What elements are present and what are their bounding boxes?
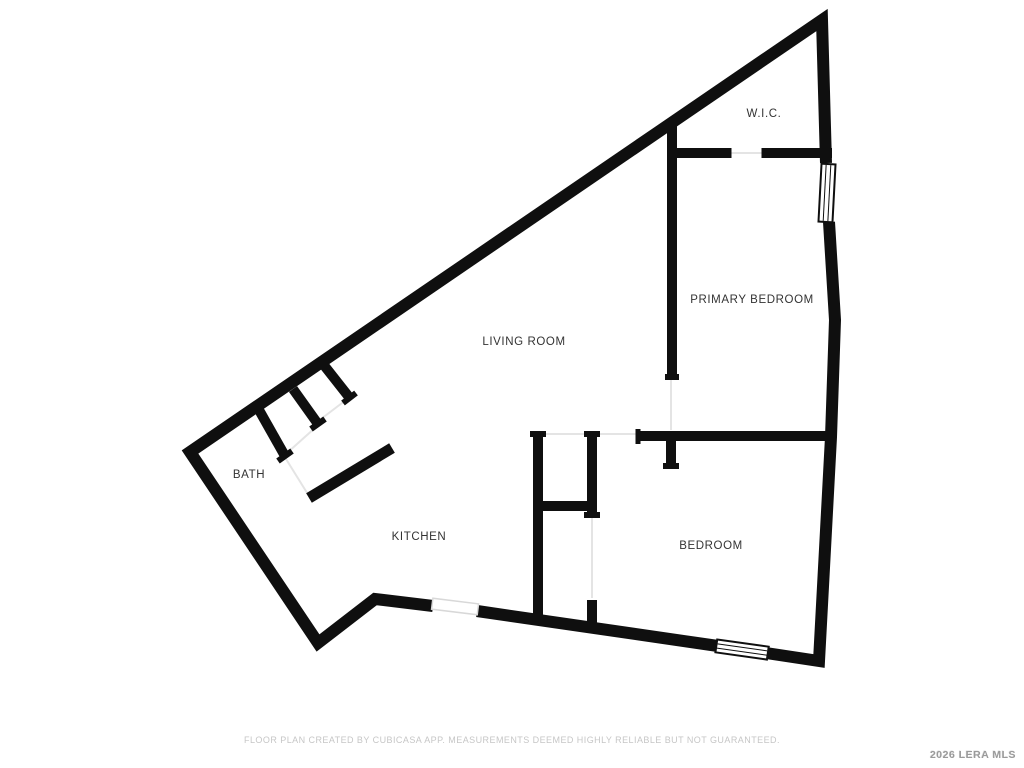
bedroom-window-window-symbol xyxy=(715,639,768,659)
room-label-kitchen: KITCHEN xyxy=(392,531,447,543)
disclaimer-text: FLOOR PLAN CREATED BY CUBICASA APP. MEAS… xyxy=(0,735,1024,745)
room-label-bedroom: BEDROOM xyxy=(679,540,743,552)
room-label-primary-bedroom: PRIMARY BEDROOM xyxy=(690,294,814,306)
primary-bedroom-window-window-symbol xyxy=(818,164,835,223)
hall-closet-slider-2-opening-line xyxy=(321,400,346,419)
floor-plan-page: W.I.C.PRIMARY BEDROOMLIVING ROOMBATHKITC… xyxy=(0,0,1024,768)
primary-bedroom-window-window-glass xyxy=(818,164,835,223)
bath-door-opening-line xyxy=(286,459,309,496)
room-label-wic: W.I.C. xyxy=(747,108,782,120)
hall-closet-slider-1-opening-line xyxy=(287,427,316,453)
floor-plan-drawing xyxy=(0,0,1024,768)
bath-stub-2-wall xyxy=(293,389,318,424)
bath-kitchen-wall-wall xyxy=(309,448,392,498)
room-label-bath: BATH xyxy=(233,469,265,481)
bath-stub-3-wall xyxy=(259,410,285,456)
kitchen-opening-passage xyxy=(432,598,479,615)
exterior-wall-chain-1 xyxy=(477,611,718,646)
room-label-living-room: LIVING ROOM xyxy=(482,336,565,348)
exterior-wall-chain-2 xyxy=(766,222,835,661)
bath-stub-1-wall xyxy=(323,364,349,397)
mls-watermark: 2026 LERA MLS xyxy=(930,749,1016,761)
